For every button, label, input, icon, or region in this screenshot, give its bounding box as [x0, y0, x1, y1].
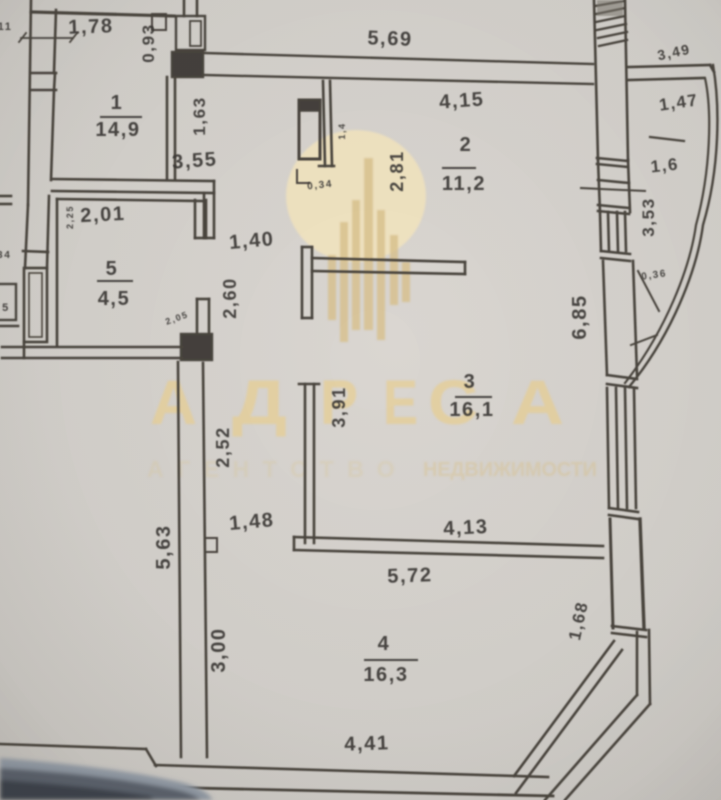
svg-text:2,52: 2,52	[213, 426, 233, 467]
svg-text:1,6: 1,6	[650, 155, 680, 177]
svg-text:1,40: 1,40	[228, 228, 275, 254]
svg-text:5: 5	[2, 302, 10, 314]
svg-text:1,78: 1,78	[68, 15, 114, 39]
svg-text:3,55: 3,55	[171, 148, 218, 173]
svg-text:0,93: 0,93	[139, 23, 158, 63]
svg-text:,34: ,34	[0, 250, 11, 261]
svg-text:5,63: 5,63	[153, 524, 175, 569]
svg-text:4,41: 4,41	[344, 732, 390, 756]
svg-text:2,01: 2,01	[80, 203, 126, 227]
svg-text:3,53: 3,53	[639, 197, 658, 237]
svg-text:5,69: 5,69	[367, 27, 413, 51]
svg-text:3,91: 3,91	[329, 386, 349, 427]
svg-text:5,72: 5,72	[387, 564, 433, 588]
svg-text:Д: Д	[232, 368, 287, 438]
svg-text:4,5: 4,5	[98, 288, 131, 310]
svg-text:14,9: 14,9	[95, 119, 140, 141]
svg-text:5: 5	[106, 258, 119, 280]
svg-text:2,81: 2,81	[387, 150, 407, 191]
svg-text:4: 4	[378, 633, 391, 655]
svg-text:4,13: 4,13	[443, 516, 489, 540]
svg-text:НЕДВИЖИМОСТИ: НЕДВИЖИМОСТИ	[423, 459, 597, 481]
svg-text:1: 1	[111, 92, 124, 114]
svg-text:11,2: 11,2	[442, 173, 486, 195]
svg-text:А: А	[511, 368, 564, 438]
svg-text:6,85: 6,85	[569, 294, 591, 339]
svg-text:АГЕНТСТВО: АГЕНТСТВО	[147, 456, 408, 482]
svg-text:А: А	[150, 368, 197, 438]
svg-text:1,4: 1,4	[337, 122, 347, 139]
svg-text:3,00: 3,00	[208, 627, 230, 672]
svg-text:Е: Е	[383, 368, 418, 438]
svg-text:11: 11	[0, 21, 12, 33]
svg-text:2,25: 2,25	[65, 205, 75, 229]
svg-text:16,3: 16,3	[363, 664, 408, 686]
svg-text:1,48: 1,48	[228, 509, 275, 535]
svg-text:2: 2	[460, 134, 473, 156]
svg-text:1,63: 1,63	[190, 96, 209, 136]
svg-text:2,60: 2,60	[220, 277, 240, 318]
svg-text:4,15: 4,15	[438, 88, 485, 113]
svg-text:3: 3	[464, 371, 477, 393]
svg-text:16,1: 16,1	[449, 399, 494, 421]
